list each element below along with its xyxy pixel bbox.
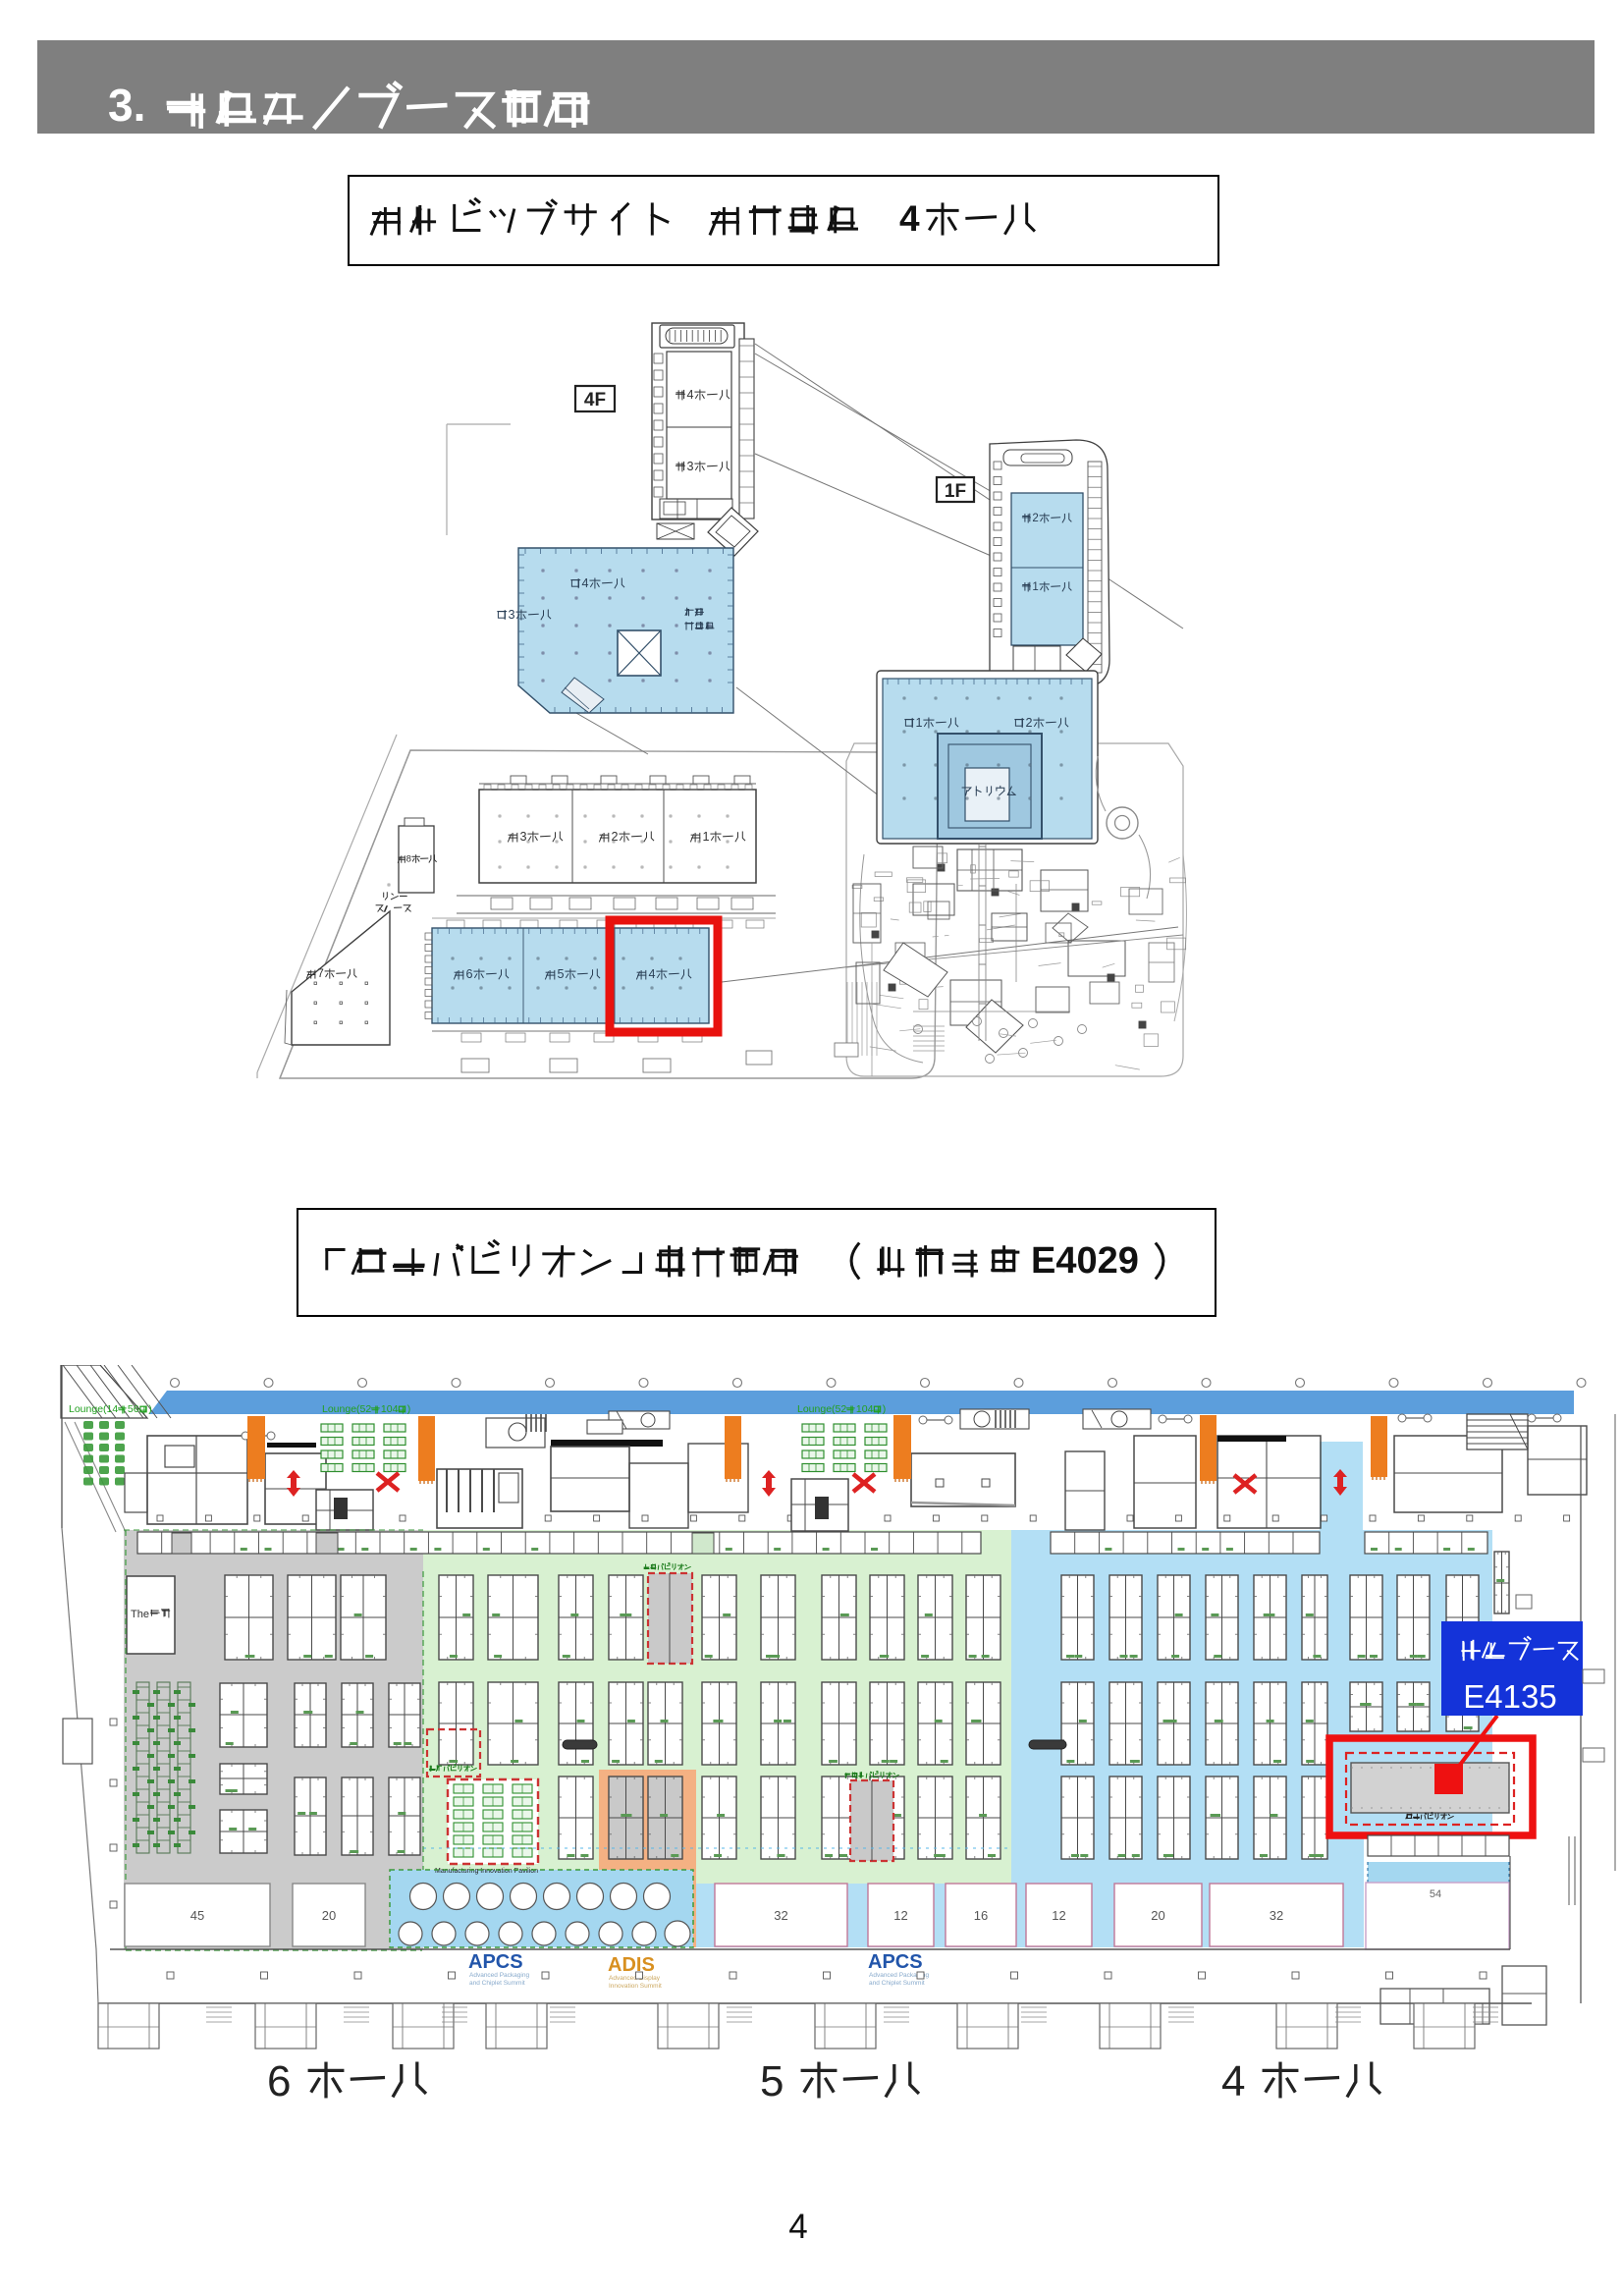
svg-text:The: The — [131, 1609, 149, 1620]
svg-text:Advanced Display: Advanced Display — [609, 1975, 661, 1982]
svg-text:4: 4 — [1221, 2057, 1245, 2105]
svg-text:): ) — [148, 1403, 152, 1415]
svg-text:APCS: APCS — [468, 1951, 523, 1973]
svg-text:Innovation Summit: Innovation Summit — [609, 1983, 662, 1990]
svg-text:56: 56 — [128, 1403, 139, 1415]
svg-text:32: 32 — [1270, 1908, 1283, 1923]
svg-text:4: 4 — [899, 198, 920, 239]
svg-text:4: 4 — [649, 967, 656, 981]
svg-text:8: 8 — [406, 853, 411, 864]
svg-text:6: 6 — [267, 2057, 291, 2105]
svg-text:7: 7 — [317, 967, 323, 980]
svg-text:1: 1 — [703, 830, 710, 844]
svg-text:E4029: E4029 — [1031, 1240, 1139, 1282]
svg-text:4: 4 — [582, 576, 589, 590]
svg-text:Lounge(14: Lounge(14 — [69, 1403, 118, 1415]
svg-text:20: 20 — [1151, 1908, 1164, 1923]
svg-text:12: 12 — [893, 1908, 907, 1923]
svg-text:4: 4 — [687, 388, 694, 402]
svg-text:Lounge(52: Lounge(52 — [322, 1403, 371, 1415]
svg-text:ADIS: ADIS — [608, 1954, 655, 1976]
svg-text:5: 5 — [558, 967, 565, 981]
svg-text:1: 1 — [916, 716, 923, 730]
svg-text:45: 45 — [190, 1908, 204, 1923]
svg-text:5: 5 — [760, 2057, 784, 2105]
svg-text:and Chiplet Summit: and Chiplet Summit — [469, 1980, 525, 1987]
svg-text:Advanced Packaging: Advanced Packaging — [469, 1972, 529, 1979]
svg-text:16: 16 — [974, 1908, 988, 1923]
svg-text:1: 1 — [1032, 580, 1038, 593]
svg-text:6: 6 — [466, 967, 473, 981]
svg-text:12: 12 — [1052, 1908, 1065, 1923]
svg-text:E4135: E4135 — [1463, 1678, 1556, 1715]
svg-text:3: 3 — [509, 608, 515, 622]
svg-text:APCS: APCS — [868, 1951, 923, 1973]
svg-text:and Chiplet Summit: and Chiplet Summit — [869, 1980, 925, 1987]
svg-text:Lounge(52: Lounge(52 — [797, 1403, 846, 1415]
svg-text:): ) — [407, 1403, 411, 1415]
svg-text:32: 32 — [774, 1908, 787, 1923]
svg-text:2: 2 — [1026, 716, 1033, 730]
svg-text:20: 20 — [322, 1908, 336, 1923]
svg-text:1F: 1F — [945, 481, 966, 502]
svg-text:2: 2 — [1032, 512, 1038, 524]
svg-text:): ) — [883, 1403, 887, 1415]
svg-text:104: 104 — [856, 1403, 874, 1415]
svg-text:Manufacturing Innovation Pavil: Manufacturing Innovation Pavilion — [435, 1868, 538, 1875]
svg-text:3: 3 — [687, 460, 694, 473]
svg-text:54: 54 — [1430, 1888, 1441, 1900]
svg-text:4F: 4F — [584, 390, 606, 410]
svg-text:3.: 3. — [108, 80, 145, 131]
svg-text:104: 104 — [381, 1403, 399, 1415]
svg-text:3: 3 — [520, 830, 527, 844]
